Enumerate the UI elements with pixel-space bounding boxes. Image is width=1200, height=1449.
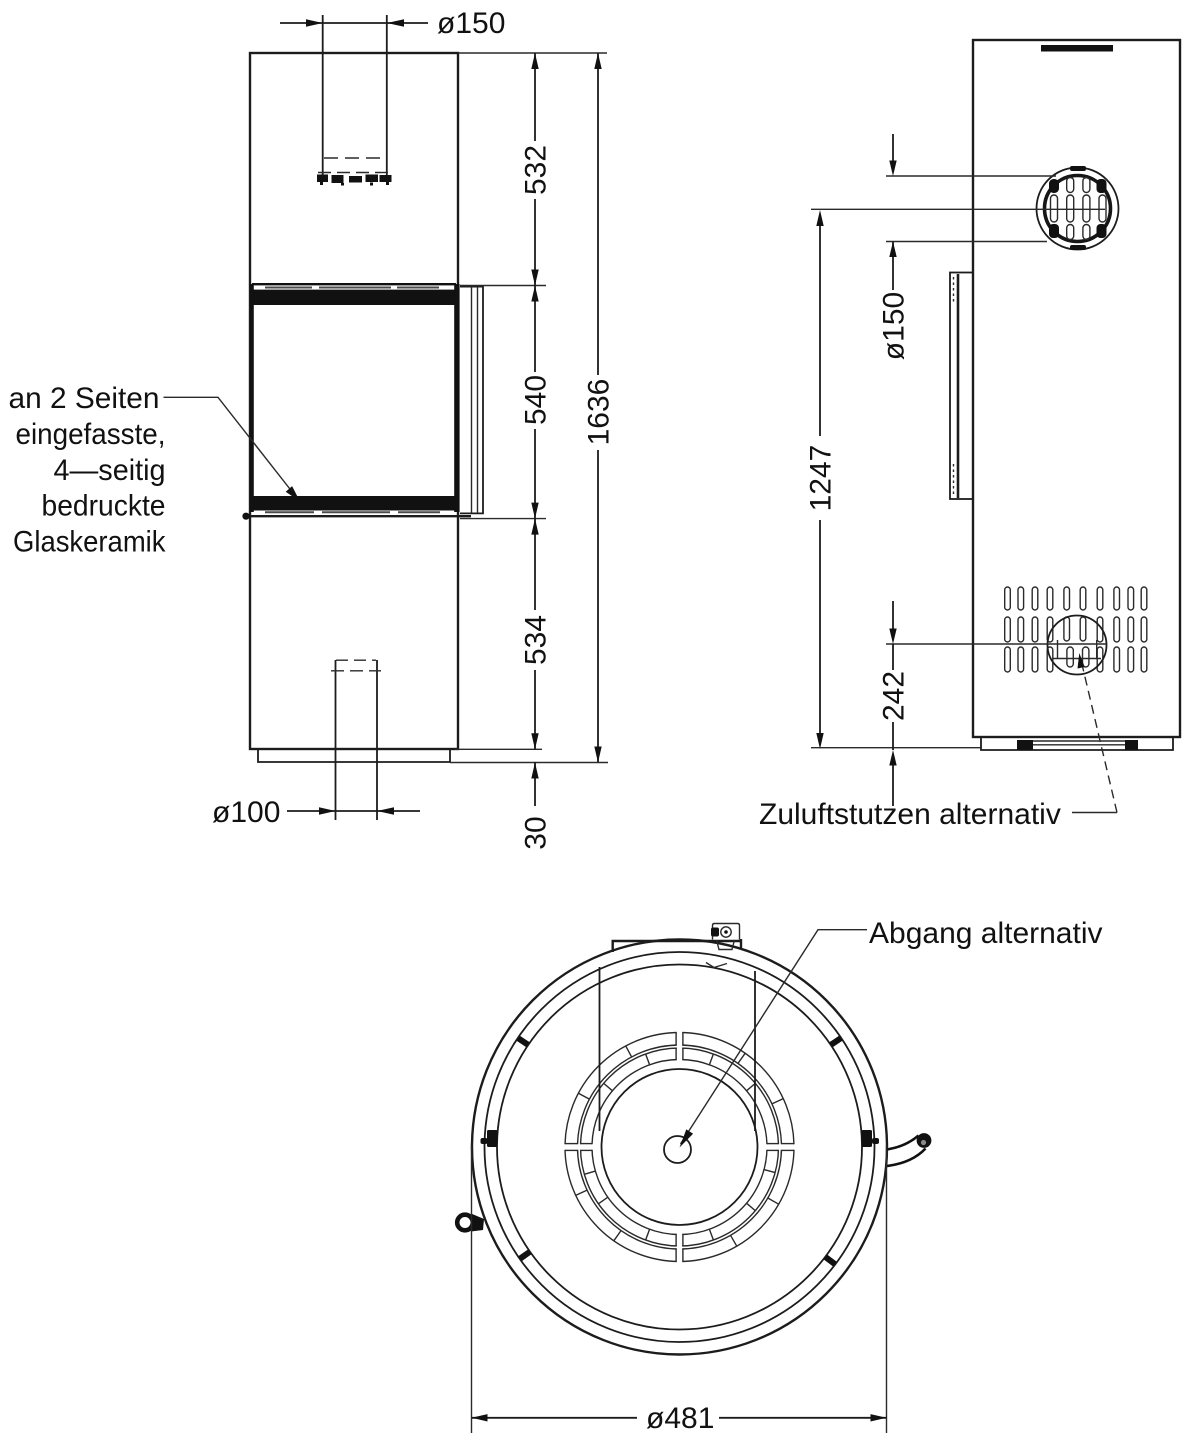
svg-text:1247: 1247 [805, 445, 838, 512]
svg-text:1636: 1636 [583, 379, 616, 446]
svg-text:540: 540 [520, 375, 553, 425]
svg-text:ø150: ø150 [878, 292, 911, 360]
svg-text:30: 30 [520, 816, 553, 849]
svg-text:534: 534 [520, 615, 553, 665]
svg-text:ø150: ø150 [437, 7, 505, 40]
svg-text:532: 532 [520, 145, 553, 195]
svg-text:4—seitig: 4—seitig [54, 454, 166, 487]
svg-text:242: 242 [878, 671, 911, 721]
svg-text:Abgang alternativ: Abgang alternativ [869, 917, 1103, 950]
svg-text:Zuluftstutzen alternativ: Zuluftstutzen alternativ [759, 798, 1061, 831]
svg-text:an 2 Seiten: an 2 Seiten [9, 382, 160, 415]
svg-text:Glaskeramik: Glaskeramik [13, 526, 166, 559]
svg-text:ø100: ø100 [212, 796, 280, 829]
svg-text:eingefasste,: eingefasste, [16, 418, 166, 451]
svg-text:bedruckte: bedruckte [42, 490, 166, 523]
svg-text:ø481: ø481 [646, 1402, 714, 1435]
